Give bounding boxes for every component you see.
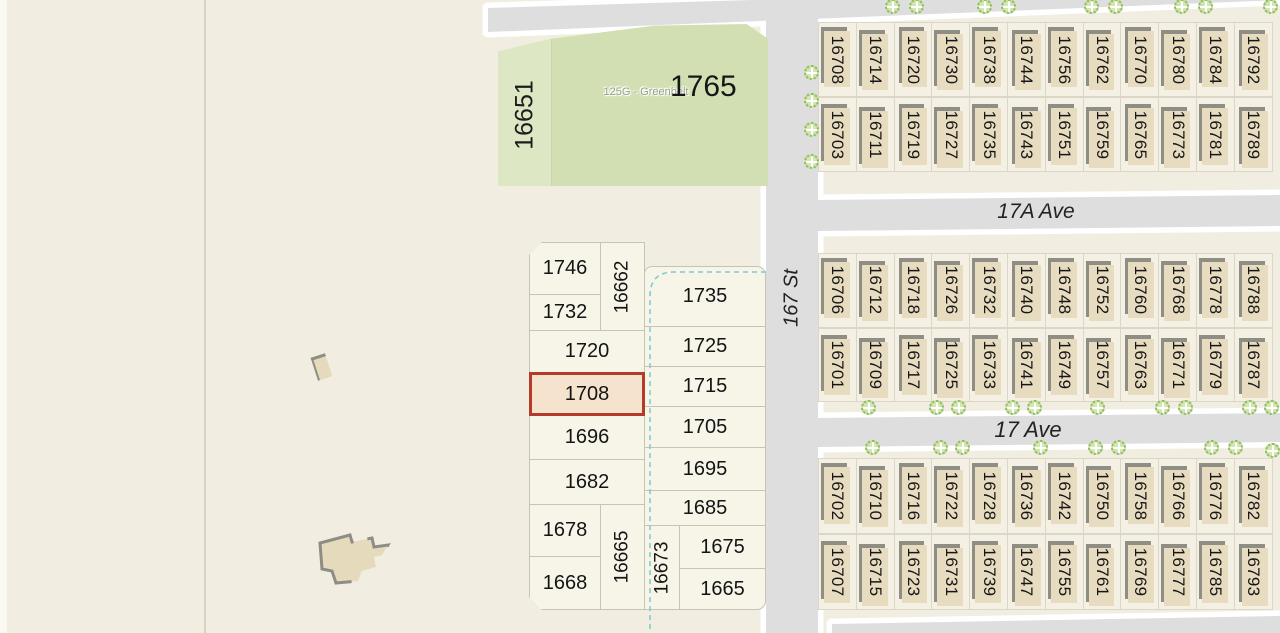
unit-number: 16716	[903, 472, 923, 521]
townhouse-unit-16733: 16733	[969, 328, 1008, 403]
townhouse-unit-16732: 16732	[969, 253, 1008, 328]
townhouse-unit-16765: 16765	[1120, 97, 1159, 172]
tree-icon	[951, 400, 966, 415]
townhouse-unit-16725: 16725	[931, 328, 970, 403]
townhouse-unit-16711: 16711	[856, 97, 895, 172]
unit-number: 16749	[1054, 340, 1074, 389]
townhouse-unit-16750: 16750	[1083, 458, 1122, 534]
tree-icon	[1005, 400, 1020, 415]
unit-number: 16779	[1205, 340, 1225, 389]
unit-number: 16793	[1243, 548, 1263, 597]
lot-1678: 1678	[529, 504, 601, 557]
unit-number: 16733	[979, 340, 999, 389]
unit-number: 16744	[1016, 35, 1036, 84]
tree-icon	[1228, 440, 1243, 455]
tree-icon	[804, 154, 819, 169]
townhouse-unit-16748: 16748	[1045, 253, 1084, 328]
lot-1685: 1685	[644, 490, 766, 526]
unit-number: 16719	[903, 110, 923, 159]
townhouse-unit-16760: 16760	[1120, 253, 1159, 328]
unit-number: 16720	[903, 35, 923, 84]
unit-number: 16750	[1092, 472, 1112, 521]
unit-number: 16759	[1092, 110, 1112, 159]
townhouse-unit-16738: 16738	[969, 22, 1008, 97]
unit-number: 16766	[1168, 472, 1188, 521]
townhouse-row-north: 1670216710167161672216728167361674216750…	[818, 458, 1280, 534]
unit-number: 16765	[1130, 110, 1150, 159]
townhouse-unit-16759: 16759	[1083, 97, 1122, 172]
townhouse-unit-16714: 16714	[856, 22, 895, 97]
townhouse-unit-16731: 16731	[931, 534, 970, 610]
unit-number: 16728	[979, 472, 999, 521]
lot-1725: 1725	[644, 326, 766, 367]
lot-16665: 16665	[600, 504, 645, 610]
townhouse-unit-16726: 16726	[931, 253, 970, 328]
tree-icon	[1090, 400, 1105, 415]
lot-1705: 1705	[644, 406, 766, 448]
lot-1675: 1675	[679, 525, 766, 569]
lot-grid: 1746 1732 16662 1720 1708 1696 1682 1678…	[529, 242, 766, 610]
unit-number: 16709	[865, 340, 885, 389]
lot-16662: 16662	[600, 242, 645, 331]
unit-number: 16752	[1092, 266, 1112, 315]
townhouse-unit-16744: 16744	[1007, 22, 1046, 97]
unit-number: 16792	[1243, 35, 1263, 84]
townhouse-unit-16782: 16782	[1234, 458, 1273, 534]
lot-1665: 1665	[679, 568, 766, 610]
tree-icon	[1264, 400, 1279, 415]
unit-number: 16782	[1243, 472, 1263, 521]
unit-number: 16748	[1054, 266, 1074, 315]
townhouse-row-north: 1670816714167201673016738167441675616762…	[818, 22, 1280, 97]
townhouse-unit-16766: 16766	[1158, 458, 1197, 534]
townhouse-unit-16702: 16702	[818, 458, 857, 534]
unit-number: 16717	[903, 340, 923, 389]
townhouse-unit-16763: 16763	[1120, 328, 1159, 403]
townhouse-unit-16784: 16784	[1196, 22, 1235, 97]
townhouse-unit-16740: 16740	[1007, 253, 1046, 328]
townhouse-unit-16789: 16789	[1234, 97, 1273, 172]
townhouse-unit-16757: 16757	[1083, 328, 1122, 403]
townhouse-unit-16787: 16787	[1234, 328, 1273, 403]
tree-icon	[1088, 440, 1103, 455]
lot-1708-highlighted: 1708	[529, 372, 645, 416]
townhouse-unit-16727: 16727	[931, 97, 970, 172]
tree-icon	[1033, 440, 1048, 455]
townhouse-unit-16719: 16719	[894, 97, 933, 172]
unit-number: 16762	[1092, 35, 1112, 84]
tree-icon	[1111, 440, 1126, 455]
townhouse-unit-16730: 16730	[931, 22, 970, 97]
townhouse-unit-16736: 16736	[1007, 458, 1046, 534]
unit-number: 16715	[865, 548, 885, 597]
lot-number-16651: 16651	[510, 80, 539, 150]
townhouse-unit-16773: 16773	[1158, 97, 1197, 172]
unit-number: 16743	[1016, 110, 1036, 159]
townhouse-unit-16718: 16718	[894, 253, 933, 328]
unit-number: 16761	[1092, 548, 1112, 597]
unit-number: 16712	[865, 266, 885, 315]
townhouse-unit-16707: 16707	[818, 534, 857, 610]
lot-1720: 1720	[529, 330, 645, 373]
greenbelt-parcel: 16651 125G - Greenbelt 1765	[498, 24, 768, 186]
tree-icon	[865, 440, 880, 455]
unit-number: 16755	[1054, 548, 1074, 597]
unit-number: 16768	[1168, 266, 1188, 315]
townhouse-block-south: 1670216710167161672216728167361674216750…	[818, 458, 1280, 610]
townhouse-unit-16742: 16742	[1045, 458, 1084, 534]
tree-icon	[929, 400, 944, 415]
unit-number: 16736	[1016, 472, 1036, 521]
unit-number: 16758	[1130, 472, 1150, 521]
unit-number: 16730	[941, 35, 961, 84]
townhouse-unit-16743: 16743	[1007, 97, 1046, 172]
unit-number: 16708	[827, 35, 847, 84]
unit-number: 16785	[1205, 548, 1225, 597]
townhouse-unit-16722: 16722	[931, 458, 970, 534]
unit-number: 16718	[903, 266, 923, 315]
unit-number: 16741	[1016, 340, 1036, 389]
unit-number: 16742	[1054, 472, 1074, 521]
townhouse-unit-16717: 16717	[894, 328, 933, 403]
street-label-17a-ave: 17A Ave	[997, 200, 1074, 224]
tree-icon	[1242, 400, 1257, 415]
townhouse-unit-16779: 16779	[1196, 328, 1235, 403]
townhouse-block-north: 1670816714167201673016738167441675616762…	[818, 22, 1280, 172]
unit-number: 16756	[1054, 35, 1074, 84]
townhouse-unit-16769: 16769	[1120, 534, 1159, 610]
unit-number: 16722	[941, 472, 961, 521]
townhouse-unit-16735: 16735	[969, 97, 1008, 172]
lot-number-1765: 1765	[670, 70, 737, 104]
townhouse-unit-16751: 16751	[1045, 97, 1084, 172]
unit-number: 16711	[865, 111, 885, 159]
unit-number: 16726	[941, 266, 961, 315]
unit-number: 16710	[865, 472, 885, 521]
townhouse-unit-16761: 16761	[1083, 534, 1122, 610]
townhouse-unit-16720: 16720	[894, 22, 933, 97]
unit-number: 16702	[827, 472, 847, 521]
unit-number: 16703	[827, 110, 847, 159]
townhouse-row-south: 1670316711167191672716735167431675116759…	[818, 97, 1280, 172]
tree-icon	[804, 122, 819, 137]
unit-number: 16738	[979, 35, 999, 84]
tree-icon	[804, 93, 819, 108]
unit-number: 16778	[1205, 266, 1225, 315]
townhouse-unit-16776: 16776	[1196, 458, 1235, 534]
lot-1735: 1735	[644, 266, 766, 327]
townhouse-block-middle: 1670616712167181672616732167401674816752…	[818, 253, 1280, 402]
townhouse-unit-16756: 16756	[1045, 22, 1084, 97]
townhouse-unit-16770: 16770	[1120, 22, 1159, 97]
townhouse-unit-16793: 16793	[1234, 534, 1273, 610]
townhouse-unit-16708: 16708	[818, 22, 857, 97]
townhouse-unit-16777: 16777	[1158, 534, 1197, 610]
unit-number: 16789	[1243, 110, 1263, 159]
townhouse-unit-16788: 16788	[1234, 253, 1273, 328]
unit-number: 16763	[1130, 340, 1150, 389]
townhouse-unit-16723: 16723	[894, 534, 933, 610]
unit-number: 16769	[1130, 548, 1150, 597]
townhouse-unit-16728: 16728	[969, 458, 1008, 534]
street-label-167-st: 167 St	[781, 269, 804, 327]
townhouse-unit-16710: 16710	[856, 458, 895, 534]
townhouse-unit-16741: 16741	[1007, 328, 1046, 403]
unit-number: 16731	[941, 548, 961, 597]
unit-number: 16725	[941, 340, 961, 389]
townhouse-unit-16749: 16749	[1045, 328, 1084, 403]
townhouse-unit-16768: 16768	[1158, 253, 1197, 328]
unit-number: 16727	[941, 110, 961, 159]
tree-icon	[1204, 440, 1219, 455]
lot-1715: 1715	[644, 366, 766, 407]
townhouse-row-south: 1670116709167171672516733167411674916757…	[818, 328, 1280, 403]
tree-icon	[1027, 400, 1042, 415]
townhouse-unit-16781: 16781	[1196, 97, 1235, 172]
lot-16673: 16673	[644, 525, 680, 610]
unit-number: 16706	[827, 266, 847, 315]
townhouse-unit-16792: 16792	[1234, 22, 1273, 97]
townhouse-unit-16709: 16709	[856, 328, 895, 403]
unit-number: 16747	[1016, 548, 1036, 597]
tree-icon	[933, 440, 948, 455]
unit-number: 16788	[1243, 266, 1263, 315]
unit-number: 16735	[979, 110, 999, 159]
unit-number: 16757	[1092, 340, 1112, 389]
unit-number: 16771	[1168, 340, 1188, 389]
townhouse-unit-16706: 16706	[818, 253, 857, 328]
lot-1682: 1682	[529, 459, 645, 505]
townhouse-unit-16755: 16755	[1045, 534, 1084, 610]
unit-number: 16723	[903, 548, 923, 597]
unit-number: 16751	[1054, 110, 1074, 159]
tree-icon	[1178, 400, 1193, 415]
unit-number: 16776	[1205, 472, 1225, 521]
townhouse-row-south: 1670716715167231673116739167471675516761…	[818, 534, 1280, 610]
street-label-17-ave: 17 Ave	[994, 417, 1061, 443]
townhouse-row-north: 1670616712167181672616732167401674816752…	[818, 253, 1280, 328]
townhouse-unit-16771: 16771	[1158, 328, 1197, 403]
lot-1695: 1695	[644, 447, 766, 491]
unit-number: 16707	[827, 548, 847, 597]
townhouse-unit-16715: 16715	[856, 534, 895, 610]
townhouse-unit-16701: 16701	[818, 328, 857, 403]
townhouse-unit-16780: 16780	[1158, 22, 1197, 97]
townhouse-unit-16778: 16778	[1196, 253, 1235, 328]
unit-number: 16773	[1168, 110, 1188, 159]
unit-number: 16777	[1168, 548, 1188, 597]
tree-icon	[1155, 400, 1170, 415]
lot-1696: 1696	[529, 415, 645, 460]
unit-number: 16780	[1168, 35, 1188, 84]
townhouse-unit-16703: 16703	[818, 97, 857, 172]
lot-1732: 1732	[529, 294, 601, 331]
townhouse-unit-16739: 16739	[969, 534, 1008, 610]
tree-icon	[804, 65, 819, 80]
tree-icon	[861, 400, 876, 415]
unit-number: 16714	[865, 35, 885, 84]
unit-number: 16760	[1130, 266, 1150, 315]
plat-map: 16651 125G - Greenbelt 1765 17A Ave 17 A…	[0, 0, 1280, 633]
unit-number: 16740	[1016, 266, 1036, 315]
unit-number: 16732	[979, 266, 999, 315]
townhouse-unit-16785: 16785	[1196, 534, 1235, 610]
unit-number: 16784	[1205, 35, 1225, 84]
unit-number: 16739	[979, 548, 999, 597]
townhouse-unit-16758: 16758	[1120, 458, 1159, 534]
lot-1746: 1746	[529, 242, 601, 295]
townhouse-unit-16762: 16762	[1083, 22, 1122, 97]
townhouse-unit-16712: 16712	[856, 253, 895, 328]
unit-number: 16781	[1205, 110, 1225, 159]
townhouse-unit-16747: 16747	[1007, 534, 1046, 610]
townhouse-unit-16752: 16752	[1083, 253, 1122, 328]
townhouse-unit-16716: 16716	[894, 458, 933, 534]
unit-number: 16787	[1243, 340, 1263, 389]
lot-1668: 1668	[529, 556, 601, 610]
unit-number: 16770	[1130, 35, 1150, 84]
unit-number: 16701	[827, 340, 847, 389]
tree-icon	[955, 440, 970, 455]
tree-icon	[1265, 443, 1280, 458]
